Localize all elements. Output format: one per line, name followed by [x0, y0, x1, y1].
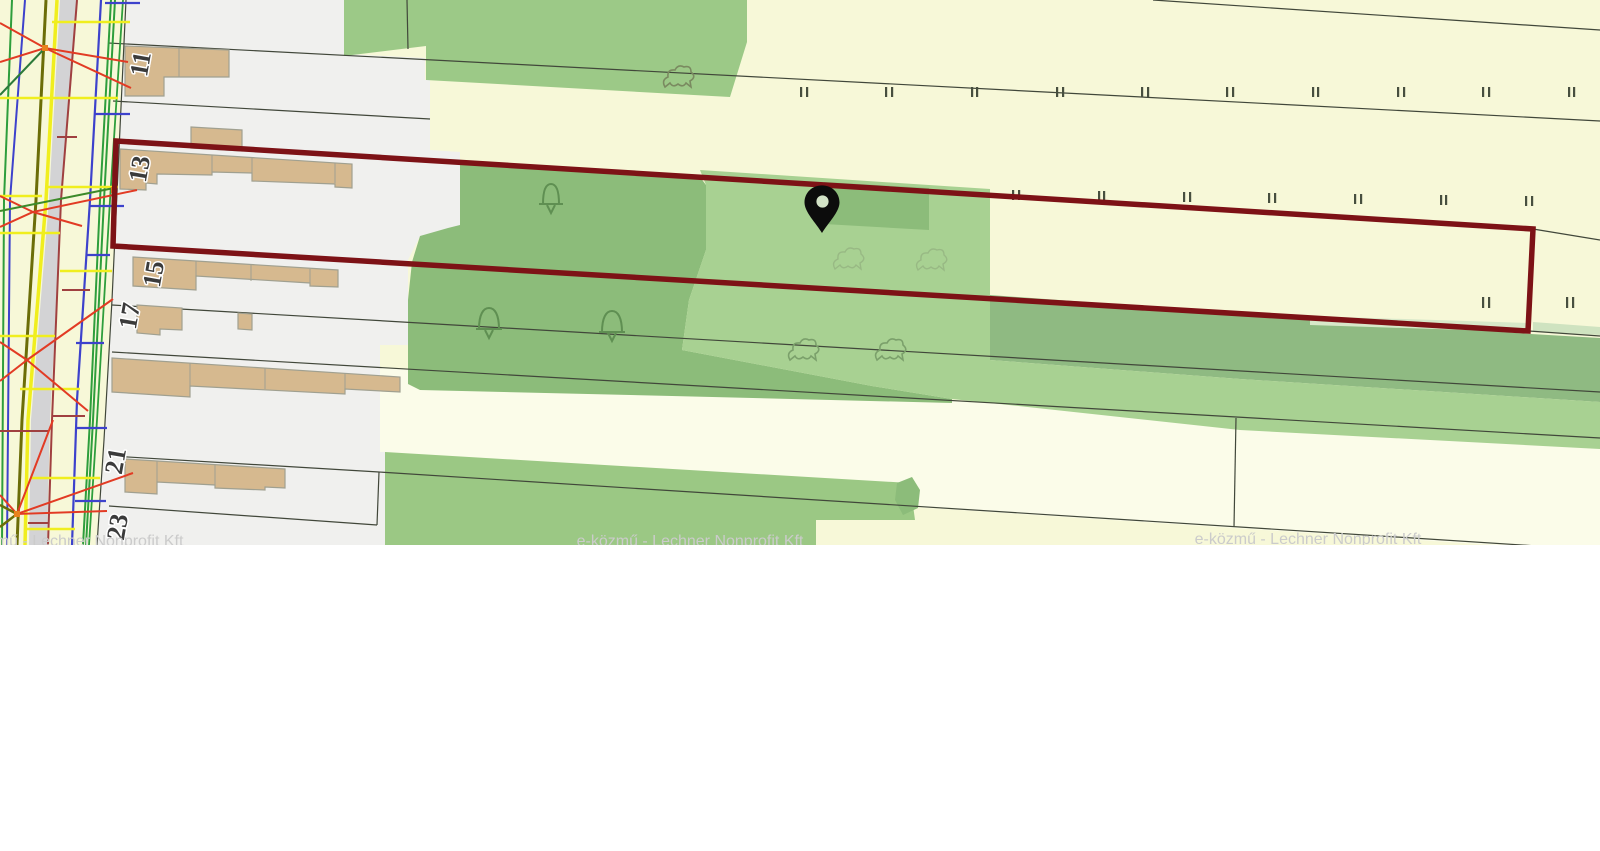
svg-text:e-közmű - Lechner Nonprofit Kf: e-közmű - Lechner Nonprofit Kft — [0, 533, 184, 550]
svg-text:11: 11 — [124, 49, 157, 78]
svg-text:e-közmű - Lechner Nonprofit Kf: e-közmű - Lechner Nonprofit Kft — [1195, 531, 1422, 548]
svg-text:13: 13 — [123, 154, 156, 185]
svg-text:17: 17 — [113, 301, 146, 332]
svg-text:e-közmű - Lechner Nonprofit Kf: e-közmű - Lechner Nonprofit Kft — [577, 533, 804, 550]
svg-text:21: 21 — [99, 446, 132, 477]
svg-text:15: 15 — [137, 259, 170, 290]
